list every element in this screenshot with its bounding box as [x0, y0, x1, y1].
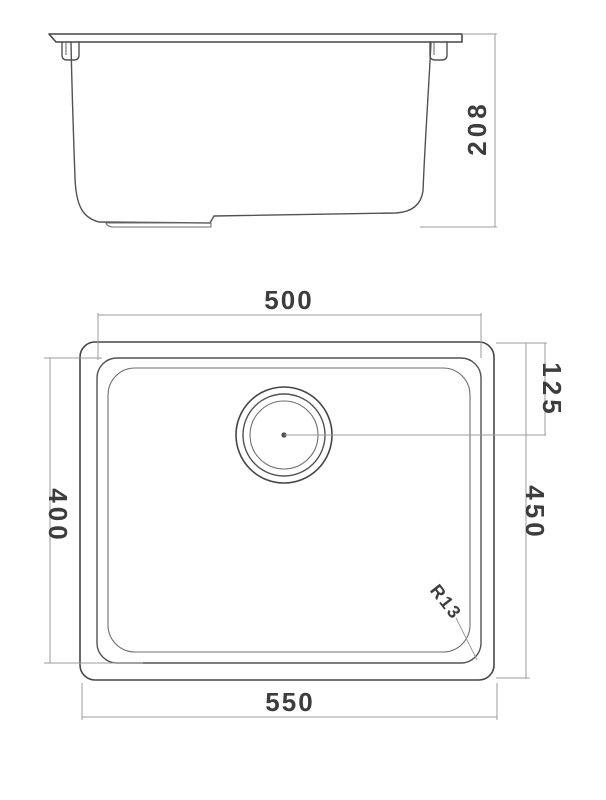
bowl-outer-outline	[97, 358, 481, 663]
sink-technical-drawing: 208 500 550	[0, 0, 606, 800]
flange-profile	[49, 34, 462, 42]
sink-body-profile	[71, 42, 431, 223]
bowl-depth-dimension-label: 400	[43, 488, 73, 543]
rim-outline	[80, 342, 494, 680]
mounting-clip-right-icon	[430, 42, 447, 60]
overall-depth-dimension-label: 450	[520, 485, 550, 540]
overall-width-dimension-label: 550	[265, 687, 314, 717]
plan-view: 500 550 400 450 125 R13	[43, 285, 567, 720]
sink-technical-drawing-page: 208 500 550	[0, 0, 606, 800]
bowl-inner-outline	[108, 368, 470, 652]
drain-offset-dimension-label: 125	[537, 362, 567, 417]
side-elevation-view: 208	[49, 34, 497, 227]
drain-recess-profile	[106, 223, 211, 227]
bowl-width-dimension-label: 500	[264, 285, 313, 315]
corner-radius-label: R13	[426, 580, 466, 623]
height-dimension-label: 208	[462, 100, 492, 155]
corner-radius-leader-line	[456, 618, 477, 660]
